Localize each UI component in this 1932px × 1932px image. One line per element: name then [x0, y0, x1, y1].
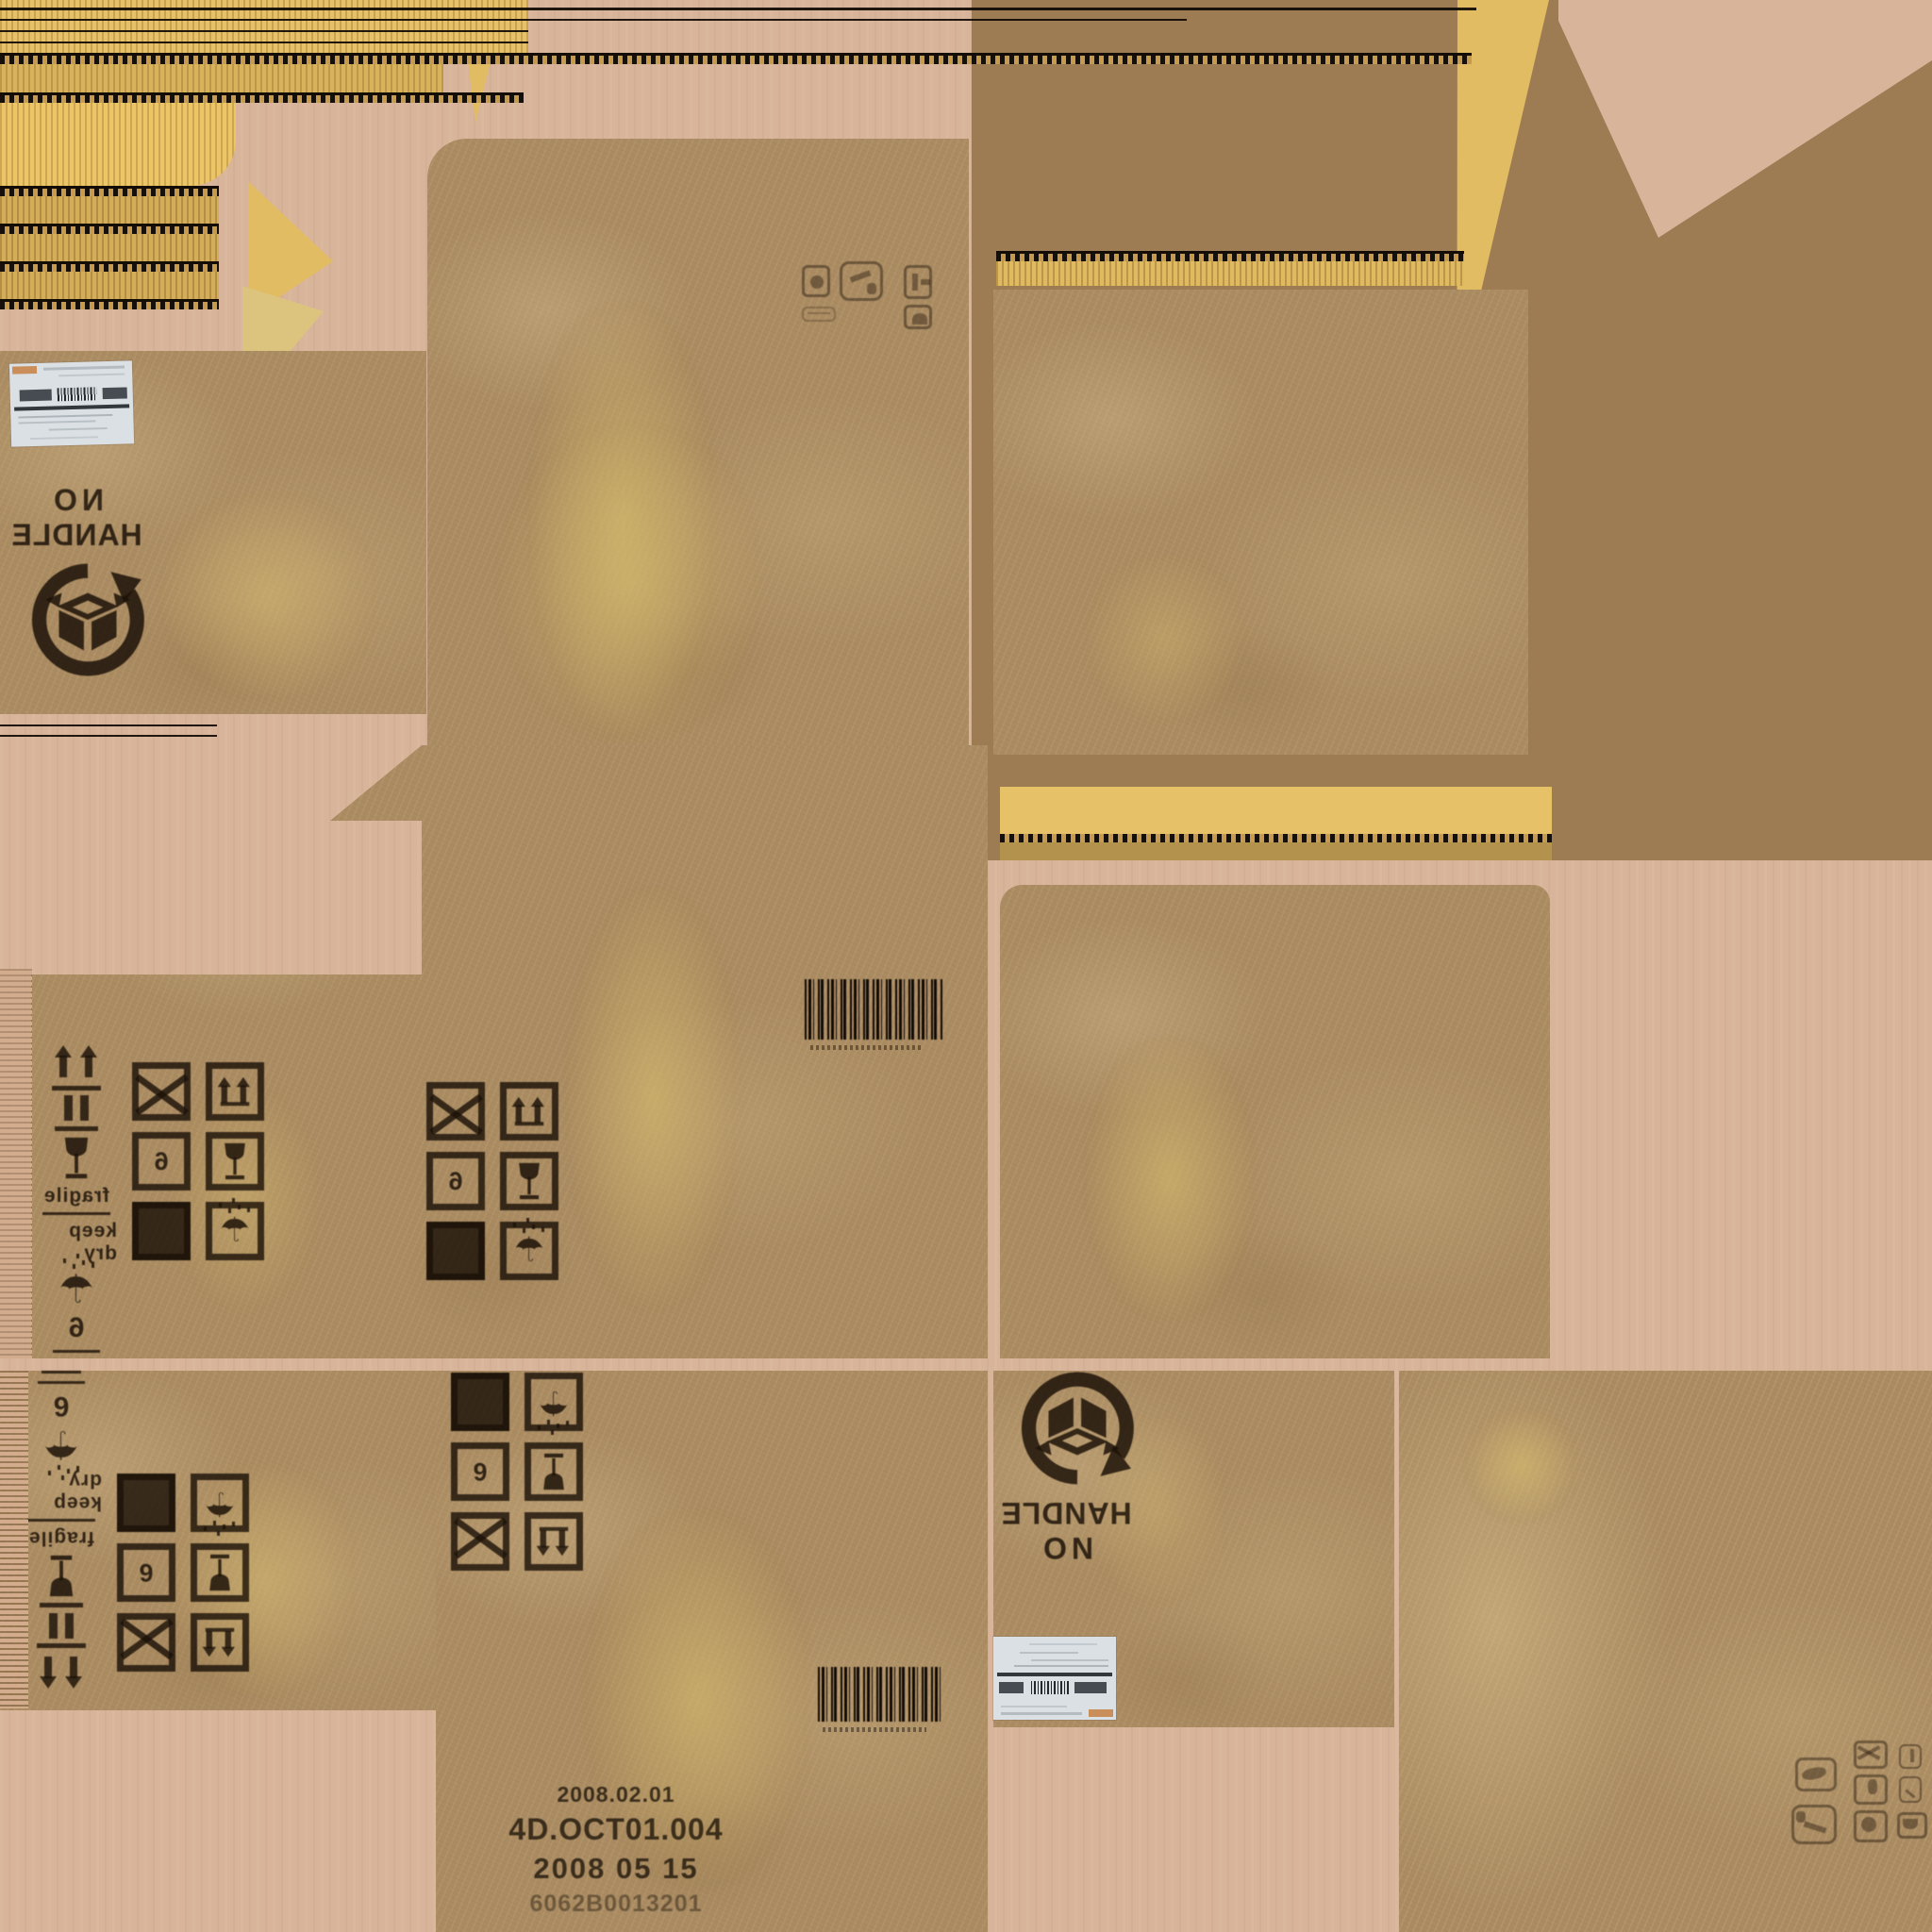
label-text-line [43, 366, 125, 371]
keep-dry-umbrella-icon: ☂ [43, 1424, 79, 1464]
solid-patch-icon [132, 1202, 191, 1260]
label-text-line [1001, 1706, 1067, 1707]
corrugation-flute-strip [996, 251, 1464, 286]
keep-dry-umbrella-icon: ☂ [206, 1202, 264, 1260]
plug-icon [904, 265, 932, 299]
stain [566, 887, 741, 1311]
box-panel: 6 ☂ 2008.02.01 4D.OCT01.004 2008 05 15 6… [436, 1371, 988, 1932]
box-panel [1000, 885, 1550, 1358]
box-panel: NO HANDLE [0, 351, 426, 714]
no-handle-stamp: NO HANDLE [6, 483, 147, 677]
shipping-label [993, 1637, 1116, 1720]
stack-limit-icon: 6 [451, 1442, 509, 1501]
label-dark-block [20, 390, 52, 402]
box-panel [427, 139, 969, 755]
label-logo-chip [12, 366, 37, 375]
edge-line [0, 19, 1187, 21]
solid-patch-icon [426, 1222, 485, 1280]
this-way-up-icon [191, 1613, 249, 1672]
cut-edge-strip [0, 1371, 28, 1708]
do-not-stack-icon [426, 1082, 485, 1141]
hook-icon [1899, 1744, 1922, 1769]
no-handle-line2: HANDLE [1000, 1495, 1131, 1530]
fine-print-marks [802, 307, 836, 322]
no-handle-stamp: NO HANDLE [995, 1371, 1137, 1565]
handling-symbols-cluster: 6 ☂ fragile keep dry ☂ 6 [36, 1045, 264, 1363]
handling-symbols-column: fragile keep dry ☂ 6 [36, 1045, 117, 1363]
label-text-line [1020, 1652, 1078, 1654]
no-handle-line1: NO [49, 483, 104, 518]
production-date-stamp: 2008.02.01 4D.OCT01.004 2008 05 15 6062B… [470, 1782, 762, 1918]
label-dark-block [103, 387, 127, 399]
rule [27, 1519, 95, 1522]
rule [42, 1371, 81, 1374]
label-barcode-icon [1029, 1681, 1069, 1694]
fragile-glass-icon [525, 1442, 583, 1501]
serial-line: 6062B0013201 [470, 1890, 762, 1918]
barcode [805, 979, 944, 1040]
handling-symbols-grid: 6 ☂ [132, 1062, 264, 1260]
corrugation-band [1000, 787, 1552, 860]
no-handle-line1: NO [1039, 1530, 1093, 1565]
corrugation-flute-strip [0, 224, 219, 261]
keep-dry-umbrella-icon: ☂ [191, 1474, 249, 1532]
fragile-glass-icon [60, 1136, 92, 1180]
corrugation-flute-line [443, 53, 1472, 56]
box-panel [993, 290, 1528, 755]
faded-pictogram-cluster [1786, 1740, 1927, 1844]
fragile-glass-icon [206, 1132, 264, 1191]
no-handle-line2: HANDLE [10, 518, 142, 553]
shipping-label [9, 360, 134, 446]
recycle-box-icon [1020, 1371, 1135, 1486]
label-text-line [30, 436, 98, 440]
box-panel [1399, 1371, 1932, 1932]
keep-dry-text: keep dry [36, 1220, 117, 1265]
this-way-up-icon [36, 1643, 87, 1689]
rule [38, 1381, 85, 1384]
hand-icon [904, 305, 932, 329]
keep-dry-umbrella-icon: ☂ [500, 1222, 558, 1280]
handling-symbols-cluster: 6 ☂ fragile keep dry ☂ 6 [21, 1371, 249, 1689]
label-barcode-icon [58, 387, 97, 401]
this-way-up-icon [51, 1045, 102, 1091]
box-panel: 6 ☂ fragile keep dry ☂ 6 [0, 1371, 436, 1710]
animal-icon [1795, 1757, 1837, 1791]
do-not-clamp-icon [53, 1095, 100, 1131]
do-not-stack-icon [117, 1613, 175, 1672]
handling-symbols-grid: 6 ☂ [451, 1373, 583, 1571]
do-not-clamp-icon [38, 1603, 85, 1639]
edge-line [0, 735, 217, 737]
mouse-device-icon [840, 261, 883, 301]
label-dark-block [1074, 1682, 1107, 1693]
label-text-line [58, 374, 125, 377]
hand-icon [1897, 1812, 1927, 1839]
stack-limit-icon: 6 [426, 1152, 485, 1210]
stain [160, 492, 377, 700]
faded-pictogram-cluster [802, 261, 943, 329]
this-way-up-icon [206, 1062, 264, 1121]
label-text-line [49, 427, 108, 431]
fragile-glass-icon [500, 1152, 558, 1210]
label-rule [14, 404, 129, 410]
date-line: 2008 05 15 [470, 1852, 762, 1886]
stack-limit-text: 6 [54, 1391, 70, 1420]
recycle-box-icon [30, 562, 145, 677]
edge-line [0, 42, 528, 43]
do-not-stack-icon [132, 1062, 191, 1121]
crossed-tools-icon [1854, 1740, 1888, 1769]
edge-line [0, 8, 1476, 10]
edge-line [0, 724, 217, 726]
stain [1465, 1408, 1578, 1522]
keep-dry-text: keep dry [21, 1469, 102, 1514]
batch-line: 4D.OCT01.004 [470, 1812, 762, 1847]
label-text-line [1031, 1659, 1108, 1661]
label-text-line [1001, 1712, 1082, 1715]
keep-dry-umbrella-icon: ☂ [58, 1270, 94, 1309]
label-text-line [18, 420, 95, 424]
starburst-icon [1854, 1810, 1888, 1842]
solid-patch-icon [451, 1373, 509, 1431]
scribble-icon [1899, 1776, 1922, 1803]
this-way-up-icon [500, 1082, 558, 1141]
box-panel: NO HANDLE [993, 1371, 1394, 1727]
corrugation-flute-strip [0, 261, 219, 299]
rule [42, 1212, 110, 1215]
label-text-line [1029, 1643, 1097, 1645]
this-way-up-icon [525, 1512, 583, 1571]
fragile-text: fragile [28, 1526, 94, 1549]
label-dark-block [999, 1682, 1024, 1693]
stain [497, 422, 761, 742]
barcode [818, 1667, 943, 1722]
edge-line [0, 30, 528, 32]
corrugation-band [0, 64, 443, 92]
solid-patch-icon [117, 1474, 175, 1532]
barcode-caption [823, 1727, 926, 1732]
rule [53, 1350, 100, 1353]
do-not-stack-icon [451, 1512, 509, 1571]
stain [1085, 554, 1245, 724]
cut-edge-strip [0, 969, 32, 1358]
fragile-text: fragile [43, 1185, 109, 1207]
handling-symbols-column: fragile keep dry ☂ 6 [21, 1371, 102, 1689]
stack-limit-icon: 6 [132, 1132, 191, 1191]
plug-cable-icon [1791, 1805, 1837, 1844]
label-text-line [1014, 1665, 1108, 1667]
stack-limit-text: 6 [69, 1314, 85, 1342]
date-line: 2008.02.01 [470, 1782, 762, 1807]
fragile-glass-icon [45, 1554, 77, 1598]
texture-atlas: NO HANDLE 6 ☂ [0, 0, 1932, 1932]
fragile-glass-icon [191, 1543, 249, 1602]
rule [57, 1360, 96, 1363]
stack-limit-icon: 6 [117, 1543, 175, 1602]
corrugation-flute-line [0, 92, 524, 103]
stain [1085, 1038, 1255, 1321]
corrugation-flute-line [0, 299, 219, 309]
starburst-icon [802, 265, 830, 297]
keep-dry-umbrella-icon: ☂ [525, 1373, 583, 1431]
figure-icon [1854, 1774, 1888, 1805]
label-text-line [18, 414, 112, 419]
barcode-caption [810, 1045, 924, 1050]
label-rule [997, 1673, 1112, 1676]
box-panel: 6 ☂ fragile keep dry ☂ 6 6 ☂ [31, 745, 988, 1358]
corrugation-flute-strip [0, 186, 219, 224]
handling-symbols-grid: 6 ☂ [426, 1082, 558, 1280]
label-logo-chip [1089, 1709, 1113, 1717]
corrugation-block [0, 103, 236, 186]
handling-symbols-grid: 6 ☂ [117, 1474, 249, 1672]
